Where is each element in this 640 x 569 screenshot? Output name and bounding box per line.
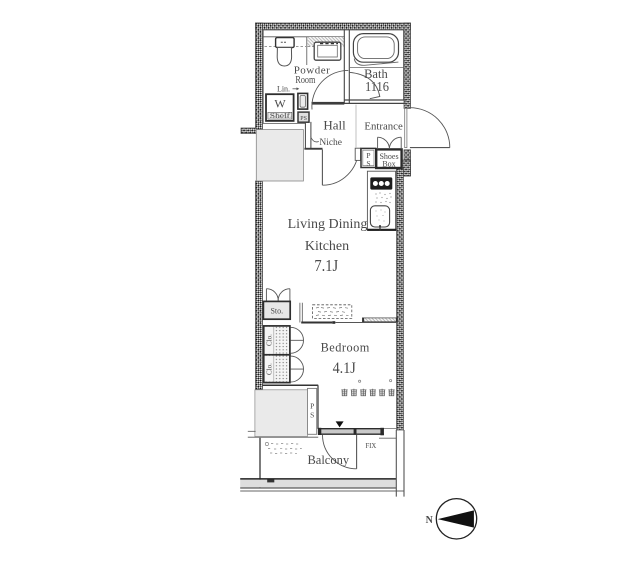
svg-text:N: N (426, 515, 434, 526)
svg-text:Sto.: Sto. (270, 307, 283, 316)
svg-text:7.1J: 7.1J (314, 256, 338, 275)
svg-text:Balcony: Balcony (307, 453, 349, 467)
svg-text:Kitchen: Kitchen (305, 239, 349, 254)
svg-text:Box: Box (382, 159, 395, 168)
svg-text:Room: Room (295, 74, 315, 86)
svg-text:Hall: Hall (323, 118, 346, 133)
svg-text:Clo.: Clo. (266, 363, 274, 375)
svg-text:Entrance: Entrance (364, 120, 403, 132)
svg-text:Living Dining: Living Dining (288, 217, 368, 232)
svg-text:Niche: Niche (319, 138, 342, 148)
svg-text:S: S (366, 159, 370, 168)
svg-text:Lin.: Lin. (277, 84, 290, 93)
svg-text:P: P (310, 402, 314, 411)
svg-text:W: W (274, 97, 286, 111)
svg-text:S: S (310, 411, 314, 420)
svg-text:1116: 1116 (365, 79, 389, 94)
svg-text:FIX: FIX (365, 443, 376, 450)
svg-text:Bedroom: Bedroom (321, 340, 370, 354)
svg-text:4.1J: 4.1J (333, 360, 356, 377)
svg-text:Clo.: Clo. (266, 334, 274, 346)
svg-text:PS: PS (300, 116, 307, 122)
svg-text:Shelf: Shelf (270, 112, 291, 120)
